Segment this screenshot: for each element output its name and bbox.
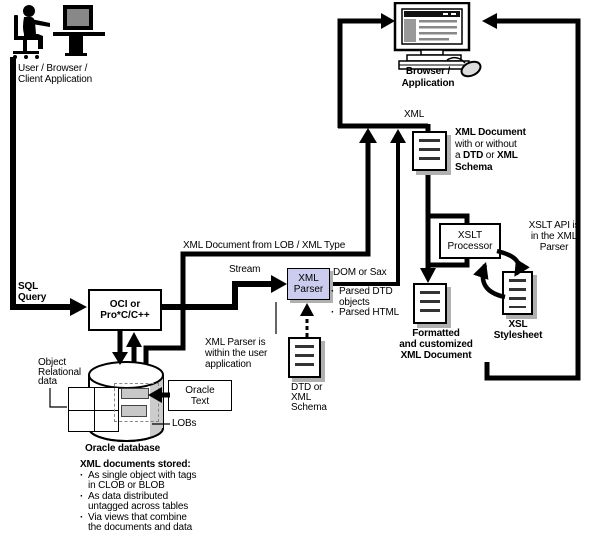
- dtd-schema-label: DTD or XML Schema: [291, 383, 327, 413]
- parsed-output-list: Parsed DTD objects Parsed HTML: [331, 287, 399, 319]
- xml-top-label: XML: [404, 110, 424, 121]
- arrowhead-oci-down: [112, 352, 128, 365]
- formatted-document-label: Formatted and customized XML Document: [396, 328, 476, 362]
- xml-documents-stored-block: XML documents stored: As single object w…: [80, 460, 196, 534]
- xslt-api-note: XSLT API is in the XML Parser: [510, 220, 598, 253]
- stylesheet-to-xslt-curve: [483, 265, 505, 297]
- stored-heading: XML documents stored:: [80, 460, 196, 471]
- stored-item: Via views that combine the documents and…: [80, 513, 196, 534]
- xslt-to-stylesheet-curve: [497, 251, 519, 274]
- oracle-database-label: Oracle database: [85, 444, 160, 455]
- objrel-leader-line: [50, 388, 67, 407]
- lobs-label: LOBs: [172, 419, 196, 430]
- arrowhead-db-up: [126, 332, 142, 347]
- stream-label: Stream: [229, 265, 260, 276]
- xml-document-label: XML Document with or without a DTD or XM…: [455, 127, 526, 173]
- stored-item: As data distributed untagged across tabl…: [80, 492, 196, 513]
- user-client-label: User / Browser / Client Application: [18, 63, 92, 85]
- lob-xml-type-label: XML Document from LOB / XML Type: [183, 241, 345, 252]
- xsl-stylesheet-label: XSL Stylesheet: [486, 319, 550, 341]
- arrowhead-oracletext: [148, 387, 162, 403]
- stored-item: As single object with tags in CLOB or BL…: [80, 471, 196, 492]
- arrowhead-dashed-up: [300, 303, 314, 316]
- dom-or-sax-label: DOM or Sax: [333, 268, 387, 279]
- browser-application-label: Browser / Application: [395, 66, 461, 89]
- diagram-canvas: OCI or Pro*C/C++ XML Parser XSLT Process…: [0, 0, 600, 560]
- sql-query-label: SQL Query: [18, 282, 46, 303]
- object-relational-label: Object Relational data: [38, 358, 81, 387]
- parser-note-label: XML Parser is within the user applicatio…: [205, 337, 267, 370]
